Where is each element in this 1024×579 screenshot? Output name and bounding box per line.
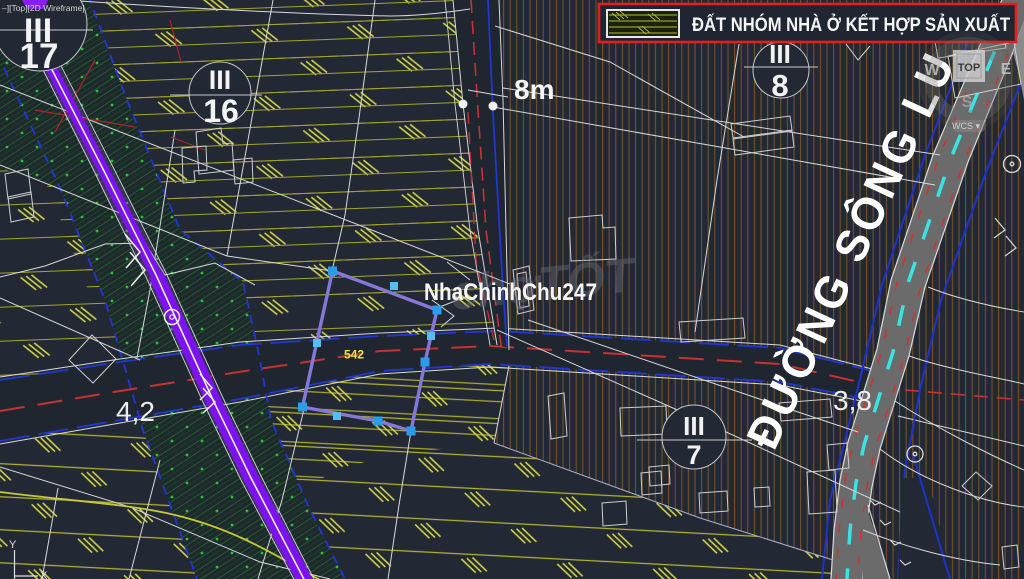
- svg-text:3,8: 3,8: [833, 385, 872, 416]
- svg-text:S: S: [962, 94, 973, 111]
- svg-text:III: III: [769, 39, 791, 69]
- svg-text:III: III: [683, 411, 705, 441]
- svg-text:W: W: [924, 62, 940, 79]
- svg-text:16: 16: [203, 93, 239, 129]
- svg-text:Y: Y: [9, 539, 17, 551]
- svg-text:III: III: [209, 65, 232, 95]
- svg-text:–][Top][2D Wireframe]: –][Top][2D Wireframe]: [2, 3, 85, 13]
- svg-text:E: E: [1001, 61, 1012, 78]
- svg-text:TOP: TOP: [958, 62, 980, 74]
- svg-text:WCS ▾: WCS ▾: [952, 121, 980, 131]
- svg-text:X: X: [40, 570, 48, 579]
- svg-text:542: 542: [344, 348, 364, 362]
- svg-text:17: 17: [20, 37, 59, 76]
- svg-text:8: 8: [771, 68, 788, 103]
- svg-text:7: 7: [686, 440, 701, 470]
- svg-text:8m: 8m: [514, 74, 554, 105]
- svg-text:4,2: 4,2: [116, 396, 155, 427]
- svg-text:NhaChinhChu247: NhaChinhChu247: [424, 279, 597, 306]
